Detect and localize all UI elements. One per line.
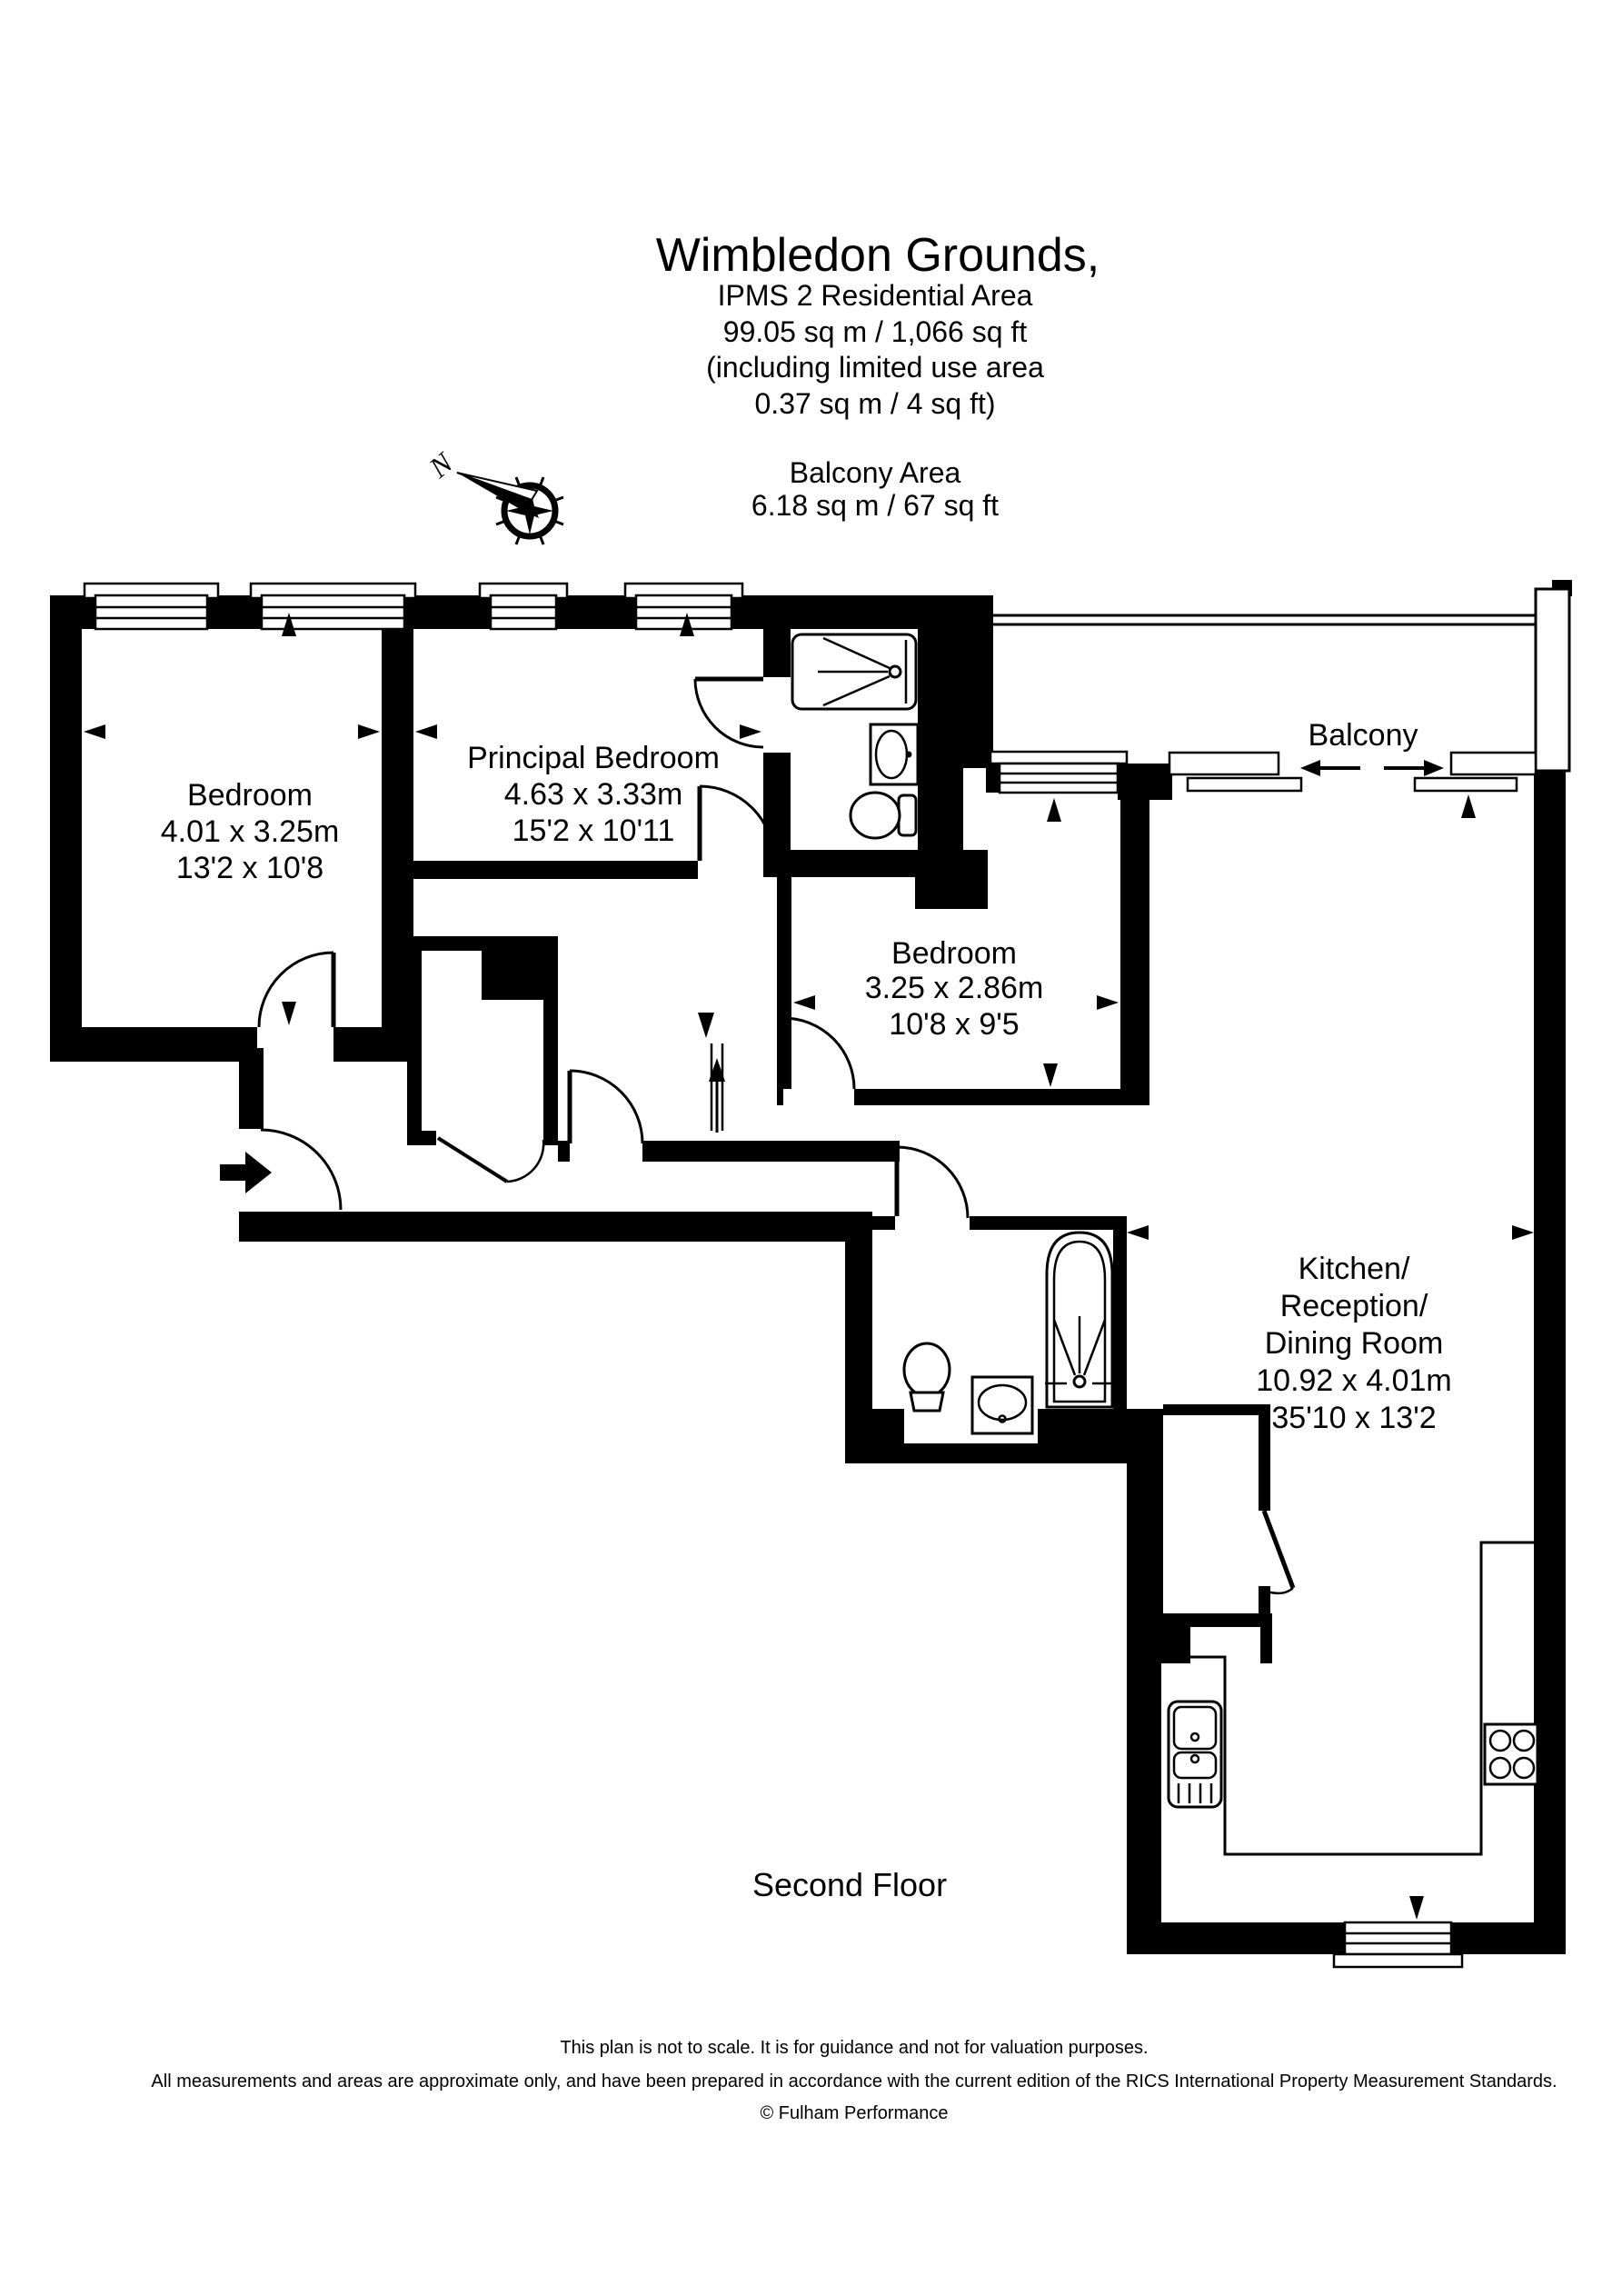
label-bedroom2: Bedroom 3.25 x 2.86m 10'8 x 9'5 <box>865 936 1044 1042</box>
footer-disclaimer: This plan is not to scale. It is for gui… <box>151 2038 1557 2123</box>
door-principal-bedroom <box>700 786 774 861</box>
window-kitchen <box>1334 1922 1462 1967</box>
sliding-door-left <box>1169 753 1301 791</box>
footer-line3: © Fulham Performance <box>760 2103 948 2123</box>
bedroom1-metric: 4.01 x 3.25m <box>161 814 340 849</box>
principal-metric: 4.63 x 3.33m <box>504 777 683 812</box>
room-labels: Bedroom 4.01 x 3.25m 13'2 x 10'8 Princip… <box>161 718 1452 1435</box>
kitchen-sink-icon <box>1169 1702 1221 1807</box>
bedroom2-metric: 3.25 x 2.86m <box>865 971 1044 1005</box>
bedroom1-imperial: 13'2 x 10'8 <box>176 851 323 885</box>
limited-use-line2: 0.37 sq m / 4 sq ft) <box>755 387 996 420</box>
window-bedroom1-a <box>95 595 207 629</box>
bedroom2-name: Bedroom <box>891 936 1017 971</box>
balcony-column <box>1536 589 1569 771</box>
header-block: Wimbledon Grounds, IPMS 2 Residential Ar… <box>656 229 1100 522</box>
door-bedroom2 <box>783 1018 854 1089</box>
balcony-label: Balcony <box>1309 718 1418 753</box>
fixtures <box>792 634 1537 1854</box>
page-title: Wimbledon Grounds, <box>656 229 1100 282</box>
footer-line2: All measurements and areas are approxima… <box>151 2071 1557 2091</box>
kitchen-name3: Dining Room <box>1265 1326 1444 1361</box>
bathroom-toilet-icon <box>904 1343 950 1411</box>
slide-arrow-right-icon <box>1384 760 1444 776</box>
label-principal-bedroom: Principal Bedroom 4.63 x 3.33m 15'2 x 10… <box>467 741 720 848</box>
door-closet-bifold <box>438 1138 543 1182</box>
bathroom-basin-icon <box>972 1377 1032 1433</box>
balcony-area-label: Balcony Area <box>790 456 961 489</box>
kitchen-imperial: 35'10 x 13'2 <box>1271 1401 1436 1435</box>
slide-arrow-left-icon <box>1300 760 1360 776</box>
ensuite-basin-icon <box>871 724 918 784</box>
kitchen-metric: 10.92 x 4.01m <box>1256 1363 1451 1398</box>
compass-icon: N <box>422 445 563 544</box>
label-kitchen: Kitchen/ Reception/ Dining Room 10.92 x … <box>1256 1252 1451 1435</box>
door-utility <box>1264 1511 1293 1593</box>
entrance-arrow-icon <box>220 1152 272 1193</box>
ensuite-toilet-icon <box>851 793 916 838</box>
balcony-area-value: 6.18 sq m / 67 sq ft <box>751 489 999 522</box>
principal-name: Principal Bedroom <box>467 741 720 775</box>
kitchen-counter <box>1161 1542 1534 1854</box>
bathtub-icon <box>1045 1233 1114 1407</box>
floor-label: Second Floor <box>752 1866 947 1903</box>
footer-line1: This plan is not to scale. It is for gui… <box>560 2038 1148 2058</box>
principal-imperial: 15'2 x 10'11 <box>512 814 675 848</box>
floorplan-canvas: Wimbledon Grounds, IPMS 2 Residential Ar… <box>0 0 1622 2296</box>
door-ensuite <box>695 679 763 747</box>
limited-use-line1: (including limited use area <box>706 351 1044 384</box>
door-bathroom <box>897 1147 968 1218</box>
bedroom1-name: Bedroom <box>187 778 313 813</box>
ipms-area: 99.05 sq m / 1,066 sq ft <box>723 315 1028 348</box>
door-entrance <box>261 1130 341 1210</box>
hob-icon <box>1485 1724 1537 1784</box>
window-bedroom1-b <box>262 595 404 629</box>
door-bedroom1 <box>259 953 333 1027</box>
bedroom2-imperial: 10'8 x 9'5 <box>889 1007 1019 1042</box>
kitchen-name2: Reception/ <box>1280 1289 1428 1323</box>
compass-north-label: N <box>422 445 460 484</box>
shower-icon <box>792 634 916 709</box>
floorplan-page: Wimbledon Grounds, IPMS 2 Residential Ar… <box>0 0 1622 2296</box>
label-bedroom1: Bedroom 4.01 x 3.25m 13'2 x 10'8 <box>161 778 340 885</box>
ipms-label: IPMS 2 Residential Area <box>718 279 1033 312</box>
kitchen-name1: Kitchen/ <box>1299 1252 1410 1286</box>
door-nook <box>570 1071 642 1143</box>
window-bedroom2-balcony <box>990 752 1127 793</box>
window-principal-a <box>491 595 556 629</box>
